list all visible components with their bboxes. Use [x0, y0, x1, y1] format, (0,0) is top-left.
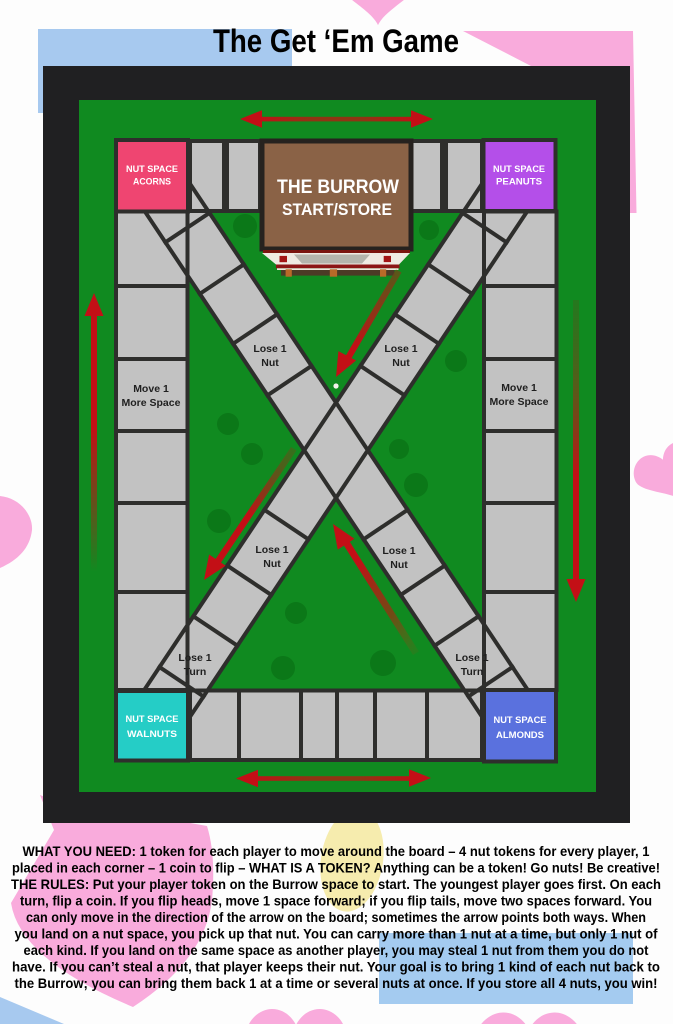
- svg-text:the Burrow; you can bring them: the Burrow; you can bring them back 1 at…: [15, 975, 658, 991]
- svg-text:NUT SPACE: NUT SPACE: [493, 164, 545, 175]
- svg-text:WALNUTS: WALNUTS: [127, 729, 177, 740]
- svg-text:More Space: More Space: [490, 396, 549, 408]
- svg-text:Nut: Nut: [392, 357, 410, 369]
- svg-text:Move 1: Move 1: [501, 382, 537, 394]
- svg-text:THE BURROW: THE BURROW: [277, 177, 399, 198]
- svg-text:START/STORE: START/STORE: [282, 201, 392, 219]
- svg-text:Lose 1: Lose 1: [255, 544, 288, 556]
- svg-text:PEANUTS: PEANUTS: [496, 177, 542, 188]
- svg-text:placed in each corner – 1 coin: placed in each corner – 1 coin to flip –…: [12, 860, 660, 876]
- svg-text:More Space: More Space: [122, 397, 181, 409]
- svg-text:can only move in the direction: can only move in the direction of the ar…: [26, 909, 646, 925]
- svg-text:each kind. If you land on the: each kind. If you land on the same space…: [24, 942, 649, 958]
- svg-text:Lose 1: Lose 1: [253, 343, 286, 355]
- svg-text:WHAT YOU NEED: 1 token for eac: WHAT YOU NEED: 1 token for each player t…: [23, 843, 650, 859]
- svg-text:ALMONDS: ALMONDS: [496, 730, 544, 741]
- svg-text:Lose 1: Lose 1: [382, 545, 415, 557]
- svg-text:Nut: Nut: [390, 559, 408, 571]
- svg-text:Lose 1: Lose 1: [455, 652, 488, 664]
- svg-text:Turn: Turn: [184, 666, 207, 678]
- svg-text:Move 1: Move 1: [133, 383, 169, 395]
- svg-text:Lose 1: Lose 1: [178, 652, 211, 664]
- svg-text:Turn: Turn: [461, 666, 484, 678]
- svg-text:ACORNS: ACORNS: [133, 177, 171, 188]
- svg-text:Nut: Nut: [263, 558, 281, 570]
- svg-text:NUT SPACE: NUT SPACE: [126, 164, 178, 175]
- svg-text:Lose 1: Lose 1: [384, 343, 417, 355]
- svg-text:THE RULES: Put your player tok: THE RULES: Put your player token on the …: [11, 876, 661, 892]
- svg-text:have. If you can’t steal a nut: have. If you can’t steal a nut, that pla…: [12, 959, 660, 975]
- svg-text:NUT SPACE: NUT SPACE: [126, 714, 179, 725]
- svg-text:you land on a nut space, you p: you land on a nut space, you pick up tha…: [15, 926, 658, 942]
- svg-text:The Get ‘Em Game: The Get ‘Em Game: [213, 23, 459, 59]
- svg-text:Nut: Nut: [261, 357, 279, 369]
- svg-text:turn, flip a coin. If you flip: turn, flip a coin. If you flip heads, mo…: [20, 893, 652, 909]
- svg-text:NUT SPACE: NUT SPACE: [494, 715, 547, 726]
